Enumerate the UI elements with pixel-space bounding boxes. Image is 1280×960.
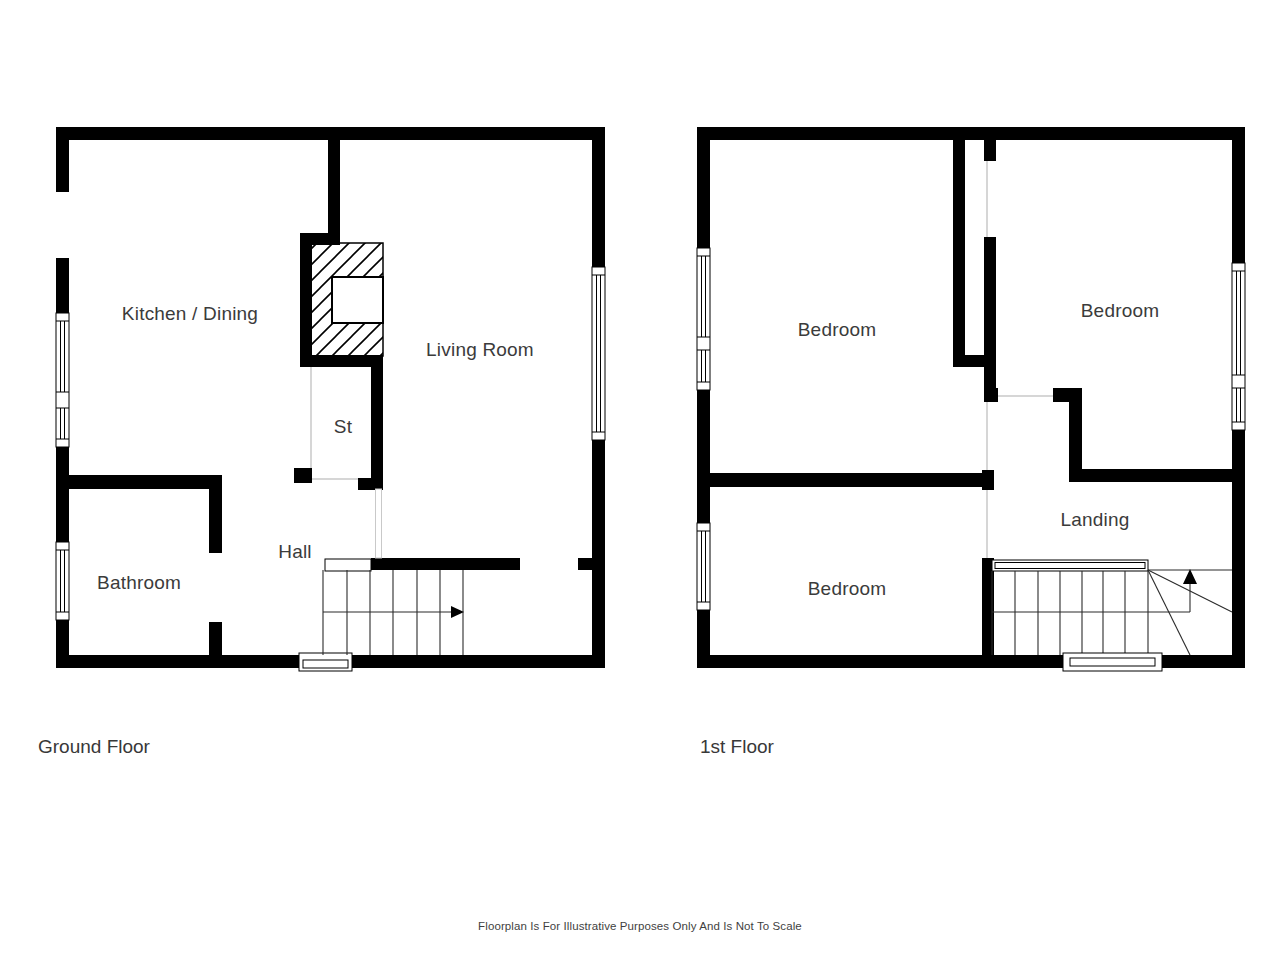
room-label-bedroom-front: Bedroom [798,319,877,341]
first-walls-part [1069,469,1245,482]
first-floor-threshold [1063,653,1162,671]
ground-walls-part [578,558,592,570]
first-walls-part [982,470,994,490]
room-label-bedroom-third: Bedroom [808,578,887,600]
first-walls [697,127,1245,668]
ground-door-openings [311,367,382,558]
window-bathroom-left [56,542,69,620]
stairs-up-arrow-ground [451,606,464,618]
first-walls-part [984,237,996,390]
ground-walls-part [371,358,383,482]
ground-walls-part [56,620,69,668]
fireplace-recess [332,277,383,323]
room-label-storage: St [334,416,352,438]
ground-walls-part [56,258,69,313]
first-walls-part [697,473,994,487]
ground-walls-part [371,558,520,570]
floorplan-drawing [0,0,1280,960]
stairs-up-arrow-first [1183,569,1197,584]
window-bedroom-third-left [697,523,710,610]
window-bedroom-third-left-part [697,523,710,610]
staircase-ground [323,570,464,655]
first-door-openings [987,161,1053,558]
ground-walls-part [294,468,312,483]
window-bedroom-front-left-part [697,248,710,390]
stair-banister-first [992,560,1148,571]
first-walls-part [953,140,965,367]
floorplan-stage: Kitchen / Dining Living Room St Hall Bat… [0,0,1280,960]
hall-living-room-divider [376,489,382,558]
window-bedroom-front-left-part [698,337,709,350]
first-walls-part [697,610,710,668]
ground-walls-part [209,489,222,553]
ground-walls-part [56,447,69,542]
first-walls-part [697,127,710,248]
ground-floor-title: Ground Floor [38,736,150,758]
window-kitchen-left [56,313,69,447]
window-kitchen-left-part [57,392,68,408]
first-walls-part [1053,388,1082,402]
ground-walls-part [56,127,69,192]
window-bedroom-back-right-part [1232,263,1245,430]
room-label-kitchen-dining: Kitchen / Dining [122,303,258,325]
window-living-room-right-part [592,267,605,440]
first-walls-part [697,655,1245,668]
window-kitchen-left-part [56,313,69,447]
first-walls-part [1232,127,1245,263]
disclaimer-text: Floorplan Is For Illustrative Purposes O… [0,920,1280,932]
first-floor-threshold-part [1070,658,1155,666]
first-floor-title: 1st Floor [700,736,774,758]
room-label-hall: Hall [278,541,312,563]
first-walls-part [697,390,710,523]
first-walls-part [697,127,1245,140]
first-walls-part [1232,430,1245,668]
room-label-living-room: Living Room [426,339,534,361]
chimney-breast [310,243,383,356]
first-walls-part [984,140,996,161]
room-label-bathroom: Bathroom [97,572,181,594]
room-label-bedroom-back: Bedroom [1081,300,1160,322]
ground-walls-part [56,475,222,489]
staircase-first [992,569,1232,655]
window-living-room-right [592,267,605,440]
stair-banister-ground [325,559,371,571]
window-bedroom-back-right [1232,263,1245,430]
ground-walls-part [328,138,340,245]
stair-banister-first-part [995,563,1145,569]
front-door-threshold [299,653,352,671]
window-bathroom-left-part [56,542,69,620]
window-bedroom-back-right-part [1233,375,1244,388]
ground-walls-part [592,440,605,668]
first-walls-part [984,388,998,402]
first-floor-plan [697,127,1245,671]
ground-walls-part [209,622,222,668]
room-label-landing: Landing [1060,509,1129,531]
ground-walls-part [358,478,383,490]
ground-walls-part [592,127,605,267]
first-windows [697,248,1245,610]
window-bedroom-front-left [697,248,710,390]
front-door-threshold-part [303,660,348,668]
